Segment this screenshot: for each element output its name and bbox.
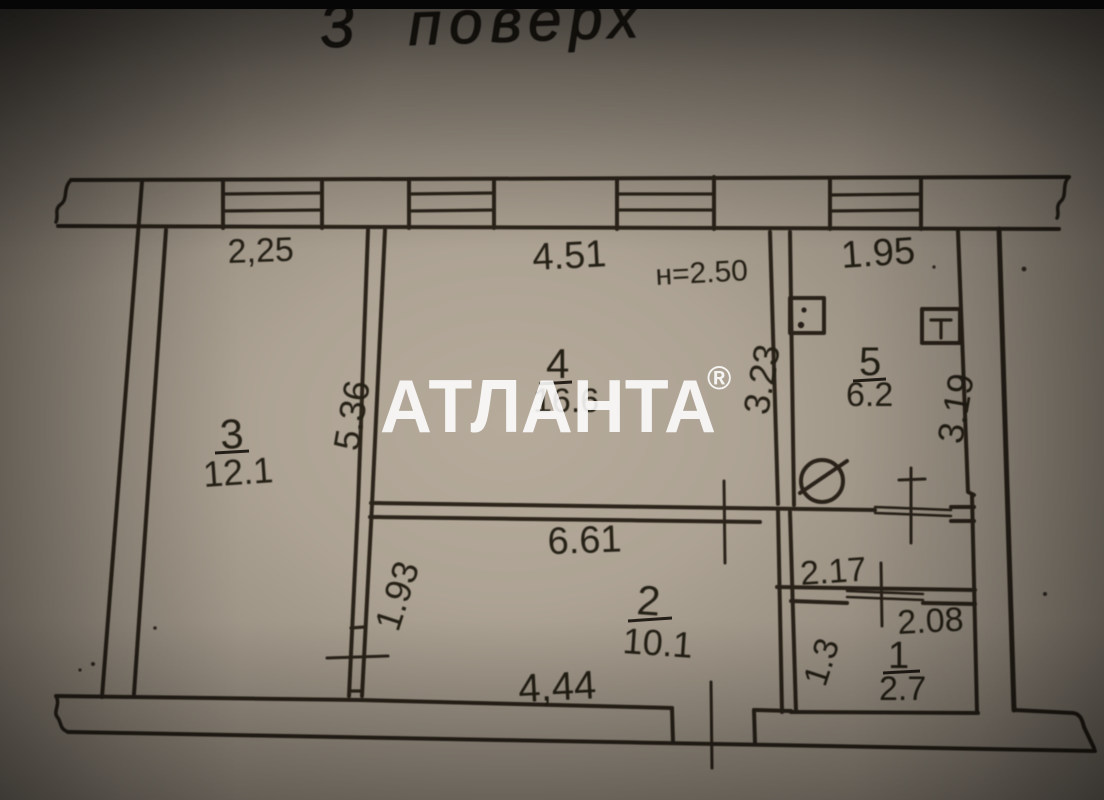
- svg-text:®: ®: [707, 359, 731, 396]
- svg-text:АТЛАНТА: АТЛАНТА: [380, 364, 716, 448]
